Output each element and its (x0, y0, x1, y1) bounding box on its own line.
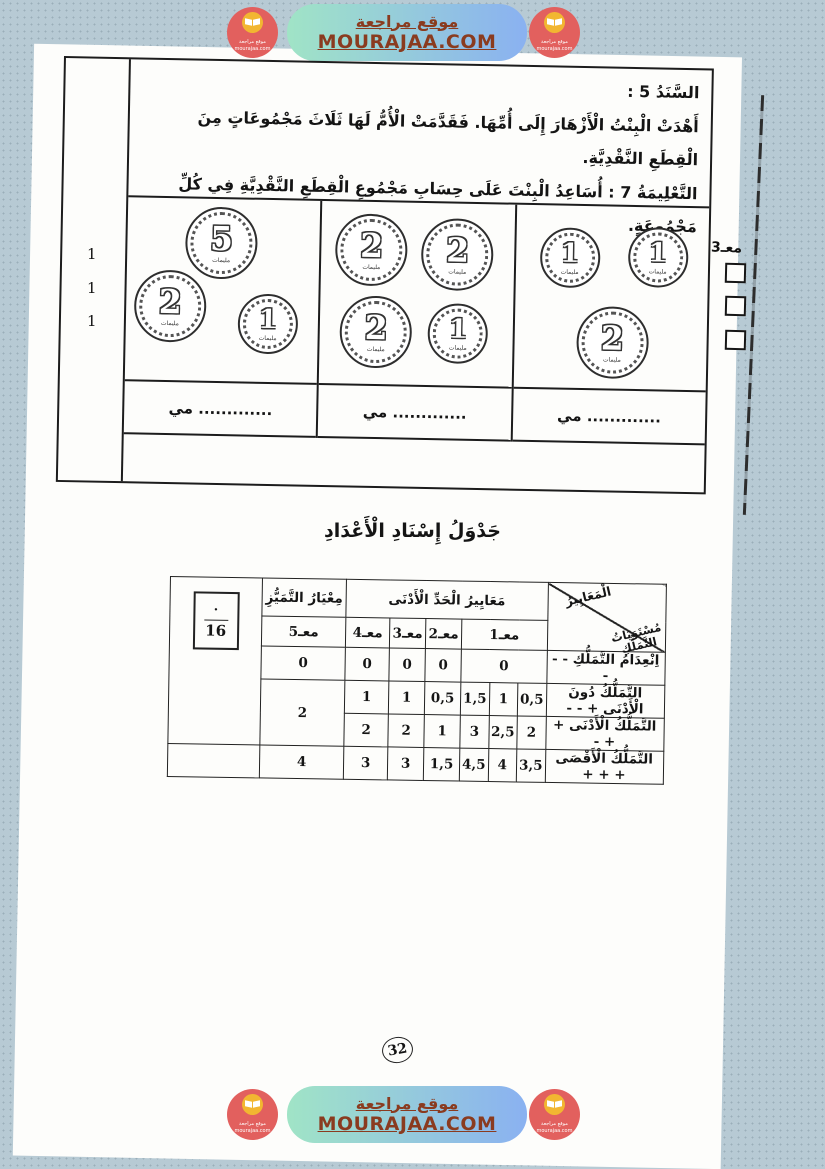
book-page-left (547, 18, 554, 25)
coin-wreath (581, 311, 644, 374)
score-value: 2 (344, 713, 389, 747)
corner-levels-label: مُسْتَوَيَاتُ التَّمَلُّكِ (609, 621, 664, 657)
coin-wreath (344, 300, 407, 363)
coin-wreath (544, 232, 595, 283)
score-value: 2 (260, 679, 345, 746)
coin-wreath (190, 211, 253, 274)
paper-torn-edge (743, 95, 764, 515)
book-page-right (253, 18, 260, 25)
score-value: 4 (259, 745, 344, 779)
score-denominator: 16 (205, 623, 226, 638)
level-label: اِنْعِدَامُ التَّمَلُّكِ - - - (546, 650, 665, 685)
book-page-right (555, 18, 562, 25)
book-icon (242, 12, 263, 33)
site-link-banner[interactable]: موقع مراجعة MOURAJAA.COM (287, 1086, 527, 1143)
coin: 5 مليمات (185, 206, 258, 279)
book-page-left (245, 1100, 252, 1107)
logo-site-url: mourajaa.com (227, 46, 278, 53)
site-url-link[interactable]: MOURAJAA.COM (318, 31, 497, 54)
score-value: 1 (344, 680, 389, 714)
mourajaa-logo-icon[interactable]: موقع مراجعة mourajaa.com (227, 7, 278, 58)
score-value: 4 (488, 749, 517, 782)
assessment-table-title: جَدْوَلُ إِسْنَادِ الْأَعْدَادِ (0, 520, 825, 542)
exercise-frame: السَّنَدُ 5 : أَهْدَتْ الْبِنْتُ الْأَزْ… (56, 56, 714, 494)
score-value: 0 (261, 646, 346, 680)
excellence-criterion-header: مِعْيَارُ التَّمَيُّزِ (262, 578, 347, 617)
side-criterion-label: معـ3 (711, 239, 743, 256)
margin-mark: 1 (87, 312, 97, 330)
coin-group-3: 5 مليمات 2 مليمات 1 مليمات .............… (124, 197, 321, 438)
score-value: 0,5 (424, 682, 461, 716)
coin-wreath (139, 274, 202, 337)
margin-mark: 1 (87, 279, 97, 297)
mourajaa-logo-icon[interactable]: موقع مراجعة mourajaa.com (529, 1089, 580, 1140)
margin-mark: 1 (87, 245, 97, 263)
site-name-arabic[interactable]: موقع مراجعة (356, 1094, 459, 1113)
logo-site-url: mourajaa.com (227, 1128, 278, 1135)
assessment-table: الْمَعَايِيرُ مُسْتَوَيَاتُ التَّمَلُّكِ… (167, 576, 667, 785)
answer-line[interactable]: ............. مي (318, 385, 511, 442)
coin-groups-table: 5 مليمات 2 مليمات 1 مليمات .............… (124, 195, 709, 445)
coin-wreath (433, 308, 484, 359)
score-value: 0 (425, 649, 462, 683)
coin: 1 مليمات (539, 227, 600, 288)
instruction-label: التَّعْلِيمَةُ 7 : (608, 182, 698, 203)
score-fraction-line (204, 619, 228, 620)
score-value: 0 (461, 649, 547, 683)
score-value: 4,5 (459, 748, 488, 781)
score-checkbox[interactable] (725, 296, 747, 317)
coin-wreath (426, 223, 489, 286)
coin-group-2: 2 مليمات 2 مليمات 2 مليمات (316, 201, 515, 442)
score-value: 0 (389, 648, 426, 682)
coin-group-2-coins: 2 مليمات 2 مليمات 2 مليمات (319, 201, 515, 389)
score-value: 1,5 (423, 748, 460, 782)
logo-site-url: mourajaa.com (529, 46, 580, 53)
site-link-banner[interactable]: موقع مراجعة MOURAJAA.COM (287, 4, 527, 61)
book-icon (544, 12, 565, 33)
coin-wreath (632, 232, 683, 283)
book-page-left (547, 1100, 554, 1107)
corner-cell: الْمَعَايِيرُ مُسْتَوَيَاتُ التَّمَلُّكِ (547, 582, 666, 652)
support-text: أَهْدَتْ الْبِنْتُ الْأَزْهَارَ إِلَى أُ… (142, 99, 699, 177)
table-row: التَّمَلُّكُ الْأَقْصَى + + + 3,5 4 4,5 … (167, 743, 663, 784)
coin: 2 مليمات (339, 295, 412, 368)
score-value: 2,5 (488, 716, 517, 749)
score-value: 1 (424, 715, 461, 749)
book-icon (242, 1094, 263, 1115)
criterion-header: معـ4 (345, 617, 389, 648)
score-value: 1,5 (460, 682, 489, 715)
page-background: موقع مراجعة mourajaa.com موقع مراجعة MOU… (0, 0, 825, 1169)
score-value: 0 (345, 647, 390, 681)
coin-group-1: 1 مليمات 1 مليمات 2 مليمات .............… (510, 205, 709, 446)
score-value: 3 (460, 715, 489, 748)
coin-wreath (242, 298, 293, 349)
coin: 2 مليمات (421, 218, 494, 291)
minimum-criteria-header: مَعَايِيرُ الْحَدِّ الْأَدْنَى (346, 579, 548, 620)
total-empty-cell (167, 743, 260, 777)
mourajaa-logo-icon[interactable]: موقع مراجعة mourajaa.com (529, 7, 580, 58)
score-value: 3 (387, 747, 424, 781)
criterion-header: معـ3 (389, 618, 425, 649)
score-box: · 16 (192, 591, 239, 650)
score-checkbox[interactable] (725, 263, 747, 284)
score-value: 2 (388, 714, 425, 748)
score-value: 1 (489, 683, 518, 716)
coin-group-1-coins: 1 مليمات 1 مليمات 2 مليمات (513, 205, 709, 393)
coin-group-3-coins: 5 مليمات 2 مليمات 1 مليمات (125, 197, 321, 385)
score-numerator: · (214, 603, 219, 616)
score-value: 3 (343, 746, 388, 780)
bottom-banner: موقع مراجعة mourajaa.com موقع مراجعة MOU… (227, 1086, 587, 1144)
answer-line[interactable]: ............. مي (512, 389, 705, 446)
coin: 1 مليمات (428, 303, 489, 364)
book-page-right (555, 1100, 562, 1107)
score-value: 1 (388, 681, 425, 715)
book-page-left (245, 18, 252, 25)
logo-site-url: mourajaa.com (529, 1128, 580, 1135)
answer-line[interactable]: ............. مي (124, 381, 317, 438)
coin-wreath (340, 218, 403, 281)
coin: 2 مليمات (134, 269, 207, 342)
corner-criteria-label: الْمَعَايِيرُ (563, 583, 612, 608)
table-header-row: الْمَعَايِيرُ مُسْتَوَيَاتُ التَّمَلُّكِ… (170, 577, 666, 623)
score-value: 2 (517, 716, 546, 749)
total-score-cell: · 16 (168, 577, 263, 745)
criterion-header: معـ5 (261, 616, 345, 647)
top-banner: موقع مراجعة mourajaa.com موقع مراجعة MOU… (227, 4, 587, 62)
criterion-header: معـ1 (461, 619, 547, 650)
book-icon (544, 1094, 565, 1115)
criterion-header: معـ2 (425, 619, 461, 650)
level-label: التَّمَلُّكُ دُونَ الْأَدْنَى + - - (546, 683, 665, 718)
level-label: التَّمَلُّكُ الْأَدْنَى + + - (545, 716, 664, 751)
site-url-link[interactable]: MOURAJAA.COM (318, 1113, 497, 1136)
coin: 1 مليمات (627, 227, 688, 288)
score-checkbox[interactable] (725, 330, 747, 351)
score-value: 3,5 (516, 749, 545, 782)
coin: 2 مليمات (335, 213, 408, 286)
site-name-arabic[interactable]: موقع مراجعة (356, 12, 459, 31)
score-value: 0,5 (517, 683, 546, 716)
coin: 2 مليمات (576, 306, 649, 379)
coin: 1 مليمات (237, 293, 298, 354)
mourajaa-logo-icon[interactable]: موقع مراجعة mourajaa.com (227, 1089, 278, 1140)
book-page-right (253, 1100, 260, 1107)
level-label: التَّمَلُّكُ الْأَقْصَى + + + (545, 749, 664, 784)
